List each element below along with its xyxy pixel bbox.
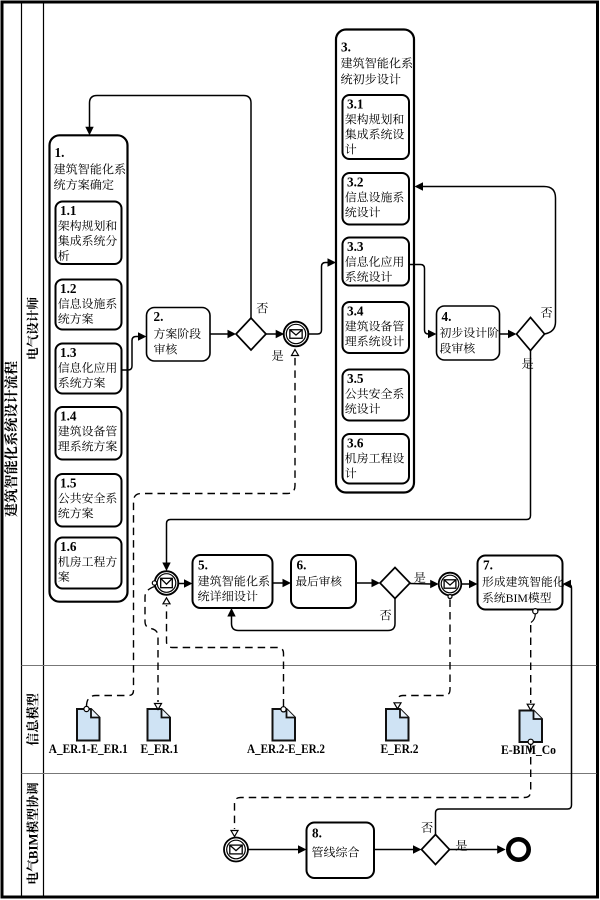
svg-text:A_ER.2-E_ER.2: A_ER.2-E_ER.2 [247, 742, 325, 756]
svg-text:1.2: 1.2 [60, 281, 77, 296]
svg-text:4.: 4. [442, 309, 452, 324]
svg-text:3.1: 3.1 [347, 97, 363, 112]
svg-text:1.4: 1.4 [60, 409, 77, 424]
svg-text:3.2: 3.2 [347, 175, 364, 190]
svg-text:1.5: 1.5 [60, 476, 77, 491]
svg-text:6.: 6. [297, 558, 307, 573]
svg-text:1.: 1. [55, 145, 65, 160]
svg-text:E_ER.2: E_ER.2 [381, 742, 419, 756]
svg-text:1.1: 1.1 [60, 203, 76, 218]
svg-text:BIM: BIM [26, 833, 40, 859]
svg-text:3.: 3. [341, 40, 351, 55]
svg-text:2.: 2. [154, 309, 164, 324]
svg-text:3.5: 3.5 [347, 371, 364, 386]
svg-text:A_ER.1-E_ER.1: A_ER.1-E_ER.1 [49, 742, 128, 756]
svg-text:3.3: 3.3 [347, 239, 364, 254]
svg-text:5.: 5. [198, 558, 208, 573]
svg-text:E_ER.1: E_ER.1 [141, 742, 179, 756]
svg-text:8.: 8. [312, 826, 322, 841]
svg-text:E-BIM_Co: E-BIM_Co [501, 743, 556, 757]
svg-text:1.3: 1.3 [60, 345, 77, 360]
svg-text:BIM: BIM [506, 591, 529, 605]
svg-text:7.: 7. [483, 558, 493, 573]
svg-text:3.4: 3.4 [347, 304, 364, 319]
svg-text:3.6: 3.6 [347, 436, 364, 451]
svg-text:1.6: 1.6 [60, 539, 77, 554]
